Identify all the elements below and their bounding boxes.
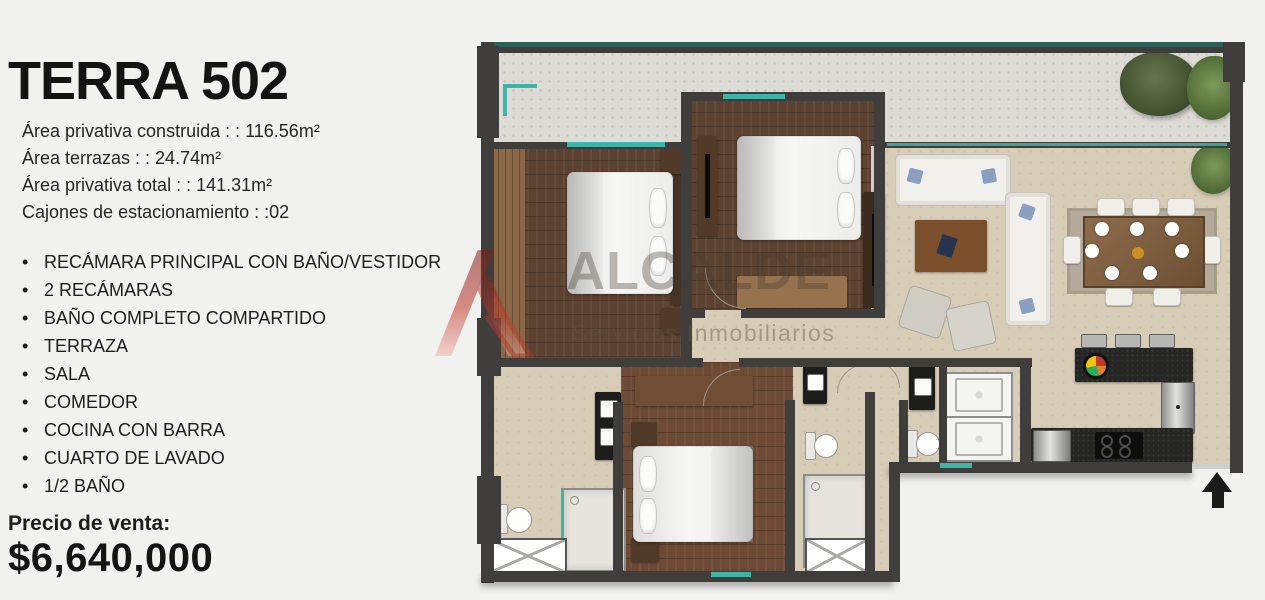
plate — [1085, 244, 1099, 258]
wall-right — [1230, 42, 1243, 473]
burner — [1101, 446, 1113, 458]
bed-pillow — [837, 192, 855, 228]
feature-item: RECÁMARA PRINCIPAL CON BAÑO/VESTIDOR — [20, 248, 441, 276]
door-marker — [940, 463, 972, 468]
dining-chair — [1203, 236, 1221, 264]
bed-pillow — [837, 148, 855, 184]
watermark-tagline: Servicios Inmobiliarios — [572, 320, 835, 347]
bed — [633, 446, 753, 542]
detail-line: Cajones de estacionamiento : :02 — [22, 199, 320, 226]
wall-top — [481, 42, 1245, 53]
plate — [1105, 266, 1119, 280]
fridge-handle — [1176, 405, 1180, 409]
price-value: $6,640,000 — [8, 536, 213, 581]
centerpiece — [1131, 246, 1145, 260]
wall-bottom-right — [889, 462, 1192, 473]
window — [805, 538, 869, 574]
bar-stool — [1081, 334, 1107, 348]
dining-chair — [1097, 198, 1125, 216]
watermark-brand: ALCALDE — [566, 240, 831, 302]
bed — [737, 136, 861, 240]
wall-suite-top — [739, 358, 899, 367]
window-marker — [723, 94, 785, 99]
fridge — [1161, 382, 1195, 434]
wall-laundry-kitchen — [1020, 358, 1031, 462]
wall-corridor-right — [899, 400, 908, 462]
pillar — [477, 476, 501, 544]
feature-item: TERRAZA — [20, 332, 441, 360]
terrace-glass — [887, 143, 1227, 146]
feature-item: SALA — [20, 360, 441, 388]
half-bath-vanity — [909, 364, 935, 410]
area-details: Área privativa construida : : 116.56m² Á… — [22, 118, 320, 226]
north-arrow-icon — [1202, 472, 1232, 492]
feature-list: RECÁMARA PRINCIPAL CON BAÑO/VESTIDOR 2 R… — [20, 248, 441, 500]
bar-stool — [1149, 334, 1175, 348]
listing-panel: TERRA 502 Área privativa construida : : … — [0, 0, 475, 600]
window-marker — [567, 142, 665, 147]
dryer — [945, 416, 1013, 462]
sofa — [895, 154, 1011, 206]
wall-bedroom2-right — [874, 92, 885, 318]
toilet-icon — [506, 507, 532, 533]
tv-icon — [705, 154, 710, 218]
wall-bedroom2-bottom — [741, 309, 874, 318]
nightstand — [631, 422, 657, 448]
wall-master-right — [785, 400, 795, 574]
bar-stool — [1115, 334, 1141, 348]
detail-line: Área terrazas : : 24.74m² — [22, 145, 320, 172]
north-arrow-stem — [1212, 492, 1224, 508]
sofa-pillow — [1019, 298, 1036, 315]
bed-blanket — [737, 136, 775, 240]
plate — [1143, 266, 1157, 280]
plate — [1095, 222, 1109, 236]
feature-item: COMEDOR — [20, 388, 441, 416]
door-marker — [711, 572, 751, 577]
sink — [914, 378, 932, 396]
chaise-sofa — [1005, 192, 1051, 326]
toilet-icon — [814, 434, 838, 458]
feature-item: CUARTO DE LAVADO — [20, 444, 441, 472]
bed-pillow — [639, 498, 657, 534]
dining-chair — [1167, 198, 1195, 216]
detail-line: Área privativa total : : 141.31m² — [22, 172, 320, 199]
dining-chair — [1063, 236, 1081, 264]
fruit-plate — [1083, 353, 1109, 379]
wall-suite-top — [481, 358, 692, 367]
wall-halfbath-laundry — [939, 367, 947, 462]
table-books — [936, 234, 957, 258]
washer — [945, 372, 1013, 418]
terrace-rail-marker — [503, 84, 537, 116]
wall-sharedbath-right — [865, 392, 875, 574]
dresser — [697, 136, 717, 236]
feature-item: 2 RECÁMARAS — [20, 276, 441, 304]
dishwasher — [1033, 430, 1071, 462]
sofa-pillow — [981, 168, 997, 184]
toilet-icon — [916, 432, 940, 456]
entry-threshold — [1192, 464, 1230, 469]
bed-blanket — [711, 446, 753, 542]
detail-line: Área privativa construida : : 116.56m² — [22, 118, 320, 145]
bed-pillow — [649, 188, 667, 228]
wall-bottom-left — [481, 571, 893, 582]
wall-suite-top — [692, 358, 703, 367]
coffee-table — [915, 220, 987, 272]
pillar — [1223, 42, 1245, 82]
feature-item: COCINA CON BARRA — [20, 416, 441, 444]
feature-item: 1/2 BAÑO — [20, 472, 441, 500]
dining-chair — [1132, 198, 1160, 216]
sofa-pillow — [1018, 203, 1036, 221]
dining-chair — [1105, 288, 1133, 306]
burner — [1119, 446, 1131, 458]
bed-pillow — [639, 456, 657, 492]
plate — [1165, 222, 1179, 236]
plate — [1175, 244, 1189, 258]
wall-extension-right — [889, 462, 900, 582]
floor-plan — [475, 40, 1253, 592]
wall-bedroom2-left — [681, 92, 692, 358]
wall-bedroom2-bottom — [692, 309, 705, 318]
sink — [807, 374, 824, 391]
alcalde-logo-icon — [428, 246, 560, 358]
shared-bath-vanity — [803, 362, 827, 404]
price-label: Precio de venta: — [8, 512, 170, 536]
wall-masterbath-divider — [613, 402, 623, 574]
page-title: TERRA 502 — [8, 50, 288, 112]
feature-item: BAÑO COMPLETO COMPARTIDO — [20, 304, 441, 332]
wall-band-top — [899, 358, 1032, 367]
stove — [1095, 432, 1143, 459]
ottoman — [945, 300, 997, 352]
sofa-pillow — [907, 168, 924, 185]
dining-chair — [1153, 288, 1181, 306]
pillar — [477, 46, 499, 138]
plate — [1130, 222, 1144, 236]
